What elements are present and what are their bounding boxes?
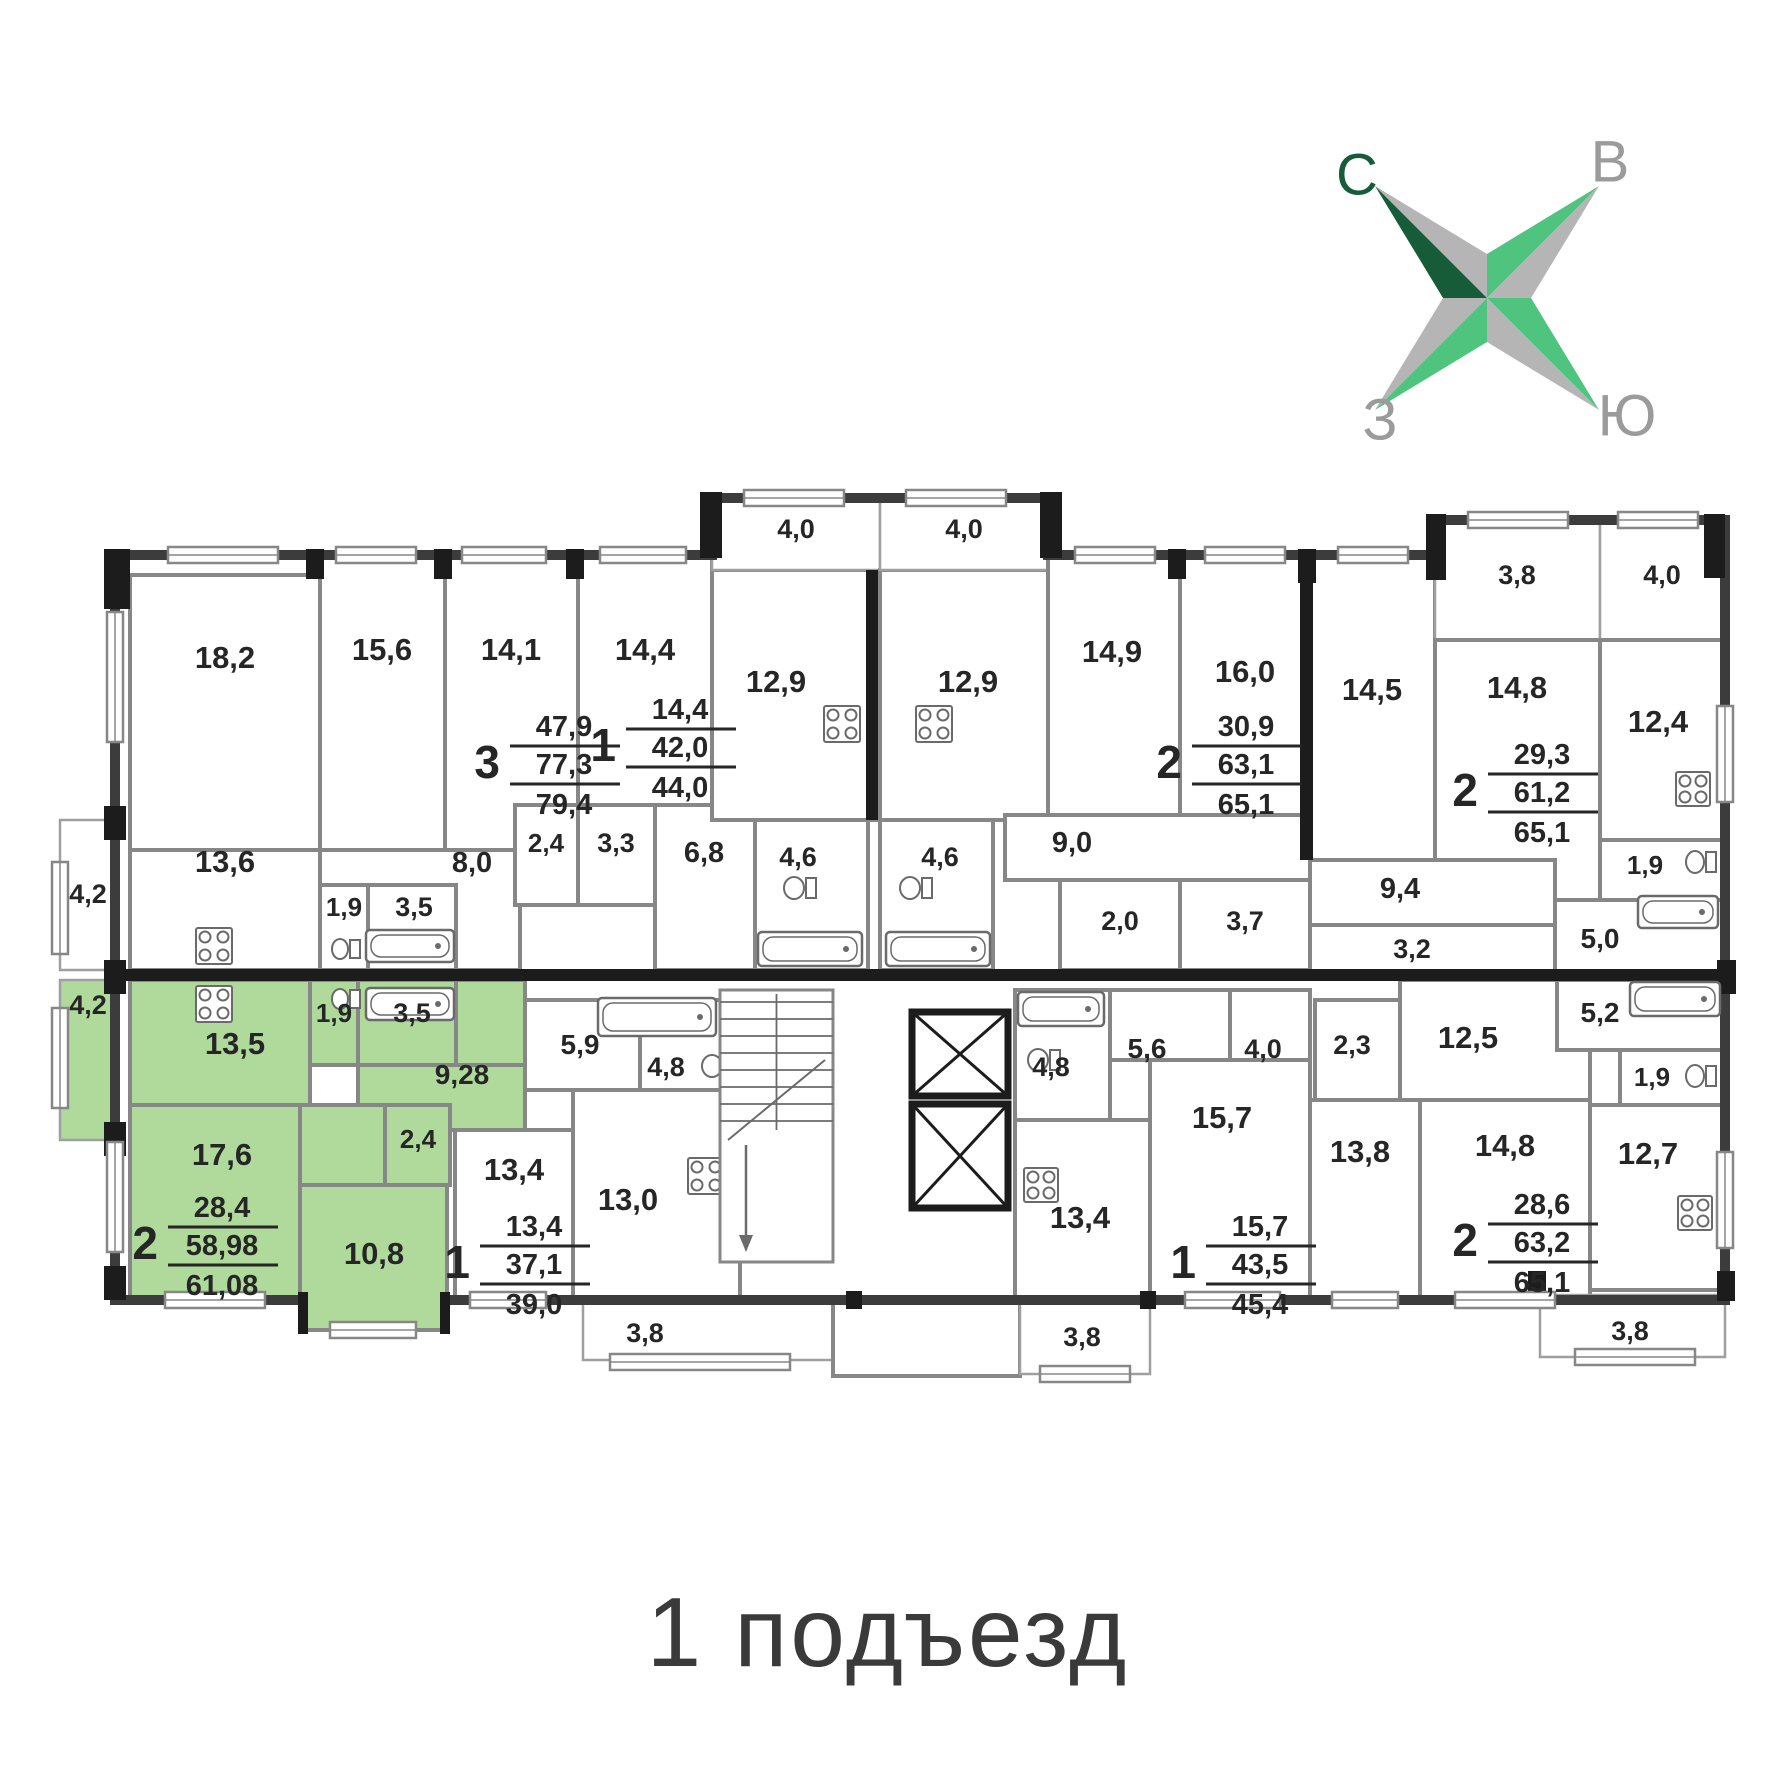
apartment-area: 63,1 (1218, 749, 1274, 781)
compass-rose: С В З Ю (1280, 100, 1740, 480)
wall-pier (866, 570, 878, 820)
room-area-label: 4,2 (69, 879, 107, 909)
room-area-label: 4,0 (1643, 560, 1681, 590)
room-area-label: 3,3 (597, 828, 635, 858)
room-area-label: 4,8 (1032, 1052, 1070, 1082)
compass-label-east: В (1591, 130, 1630, 195)
room-area-label: 15,6 (352, 632, 412, 667)
room-area-label: 13,4 (484, 1152, 545, 1187)
room-area-label: 13,5 (205, 1026, 265, 1061)
apartment-living-area: 28,4 (194, 1192, 250, 1224)
room-area-label: 2,3 (1333, 1030, 1371, 1060)
tub-icon (366, 930, 454, 962)
room-area-label: 12,9 (746, 664, 806, 699)
wall-pier (566, 549, 584, 579)
stove-icon (1678, 1196, 1712, 1230)
room-area-label: 5,0 (1581, 923, 1620, 954)
shaft-icon (912, 1104, 1008, 1208)
stove-icon (1676, 772, 1710, 806)
room-room-18-2 (130, 575, 320, 850)
apartment-total-area: 65,1 (1514, 1267, 1570, 1299)
toilet-icon (1686, 1065, 1716, 1087)
apartment-living-area: 29,3 (1514, 739, 1570, 771)
toilet-icon (332, 939, 360, 959)
room-area-label: 14,8 (1487, 670, 1547, 705)
apartment-rooms-count: 2 (1452, 764, 1478, 816)
room-area-label: 14,4 (615, 632, 676, 667)
toilet-icon (784, 877, 816, 899)
apartment-area: 43,5 (1232, 1249, 1288, 1281)
apartment-rooms-count: 1 (1170, 1236, 1196, 1288)
apartment-total-area: 39,0 (506, 1289, 562, 1321)
toilet-icon (900, 877, 932, 899)
apartment-total-area: 65,1 (1514, 817, 1570, 849)
room-room-14-5 (1310, 555, 1435, 860)
room-area-label: 3,8 (1611, 1316, 1649, 1346)
tub-icon (598, 998, 716, 1036)
apartment-area: 42,0 (652, 732, 708, 764)
room-area-label: 1,9 (1627, 850, 1663, 880)
apartment-living-area: 14,4 (652, 694, 708, 726)
room-area-label: 1,9 (316, 998, 352, 1028)
room-area-label: 14,1 (481, 632, 541, 667)
room-hall-9-28-lower (300, 1105, 385, 1185)
stove-icon (1024, 1168, 1058, 1202)
balcony-balcony-3-8-bottom1 (583, 1300, 850, 1360)
room-area-label: 12,7 (1618, 1136, 1678, 1171)
central-divider-wall (115, 969, 1725, 981)
room-area-label: 4,2 (69, 990, 107, 1020)
apartment-area: 58,98 (186, 1230, 259, 1262)
room-area-label: 14,8 (1475, 1128, 1535, 1163)
stove-icon (824, 706, 860, 742)
room-area-label: 13,6 (195, 844, 255, 879)
entrance-caption: 1 подъезд (0, 1576, 1776, 1689)
room-area-label: 8,0 (452, 847, 492, 879)
wall-pier (700, 492, 722, 558)
room-area-label: 13,0 (598, 1182, 658, 1217)
wall-pier (104, 806, 126, 840)
apartment-total-area: 44,0 (652, 772, 708, 804)
apartment-rooms-count: 2 (1156, 736, 1182, 788)
room-area-label: 4,6 (921, 842, 959, 872)
room-area-label: 2,0 (1101, 906, 1139, 936)
wall-pier (104, 549, 130, 609)
apartment-rooms-count: 3 (474, 736, 500, 788)
room-area-label: 14,9 (1082, 634, 1142, 669)
wall-pier (1168, 549, 1186, 579)
wall-pier (306, 549, 324, 579)
wall-pier (104, 960, 126, 994)
room-area-label: 12,5 (1438, 1020, 1498, 1055)
room-area-label: 14,5 (1342, 672, 1402, 707)
room-storage-3-2 (1310, 925, 1555, 975)
room-area-label: 1,9 (1634, 1062, 1670, 1092)
room-area-label: 15,7 (1192, 1100, 1252, 1135)
room-area-label: 13,8 (1330, 1134, 1390, 1169)
room-area-label: 4,8 (647, 1052, 685, 1082)
stove-icon (196, 986, 232, 1022)
room-area-label: 4,0 (777, 514, 815, 544)
apartment-total-area: 65,1 (1218, 789, 1274, 821)
room-area-label: 18,2 (195, 640, 255, 675)
wall-pier (434, 549, 452, 579)
room-area-label: 6,8 (684, 837, 724, 869)
tub-icon (1018, 992, 1104, 1026)
apartment-rooms-count: 1 (590, 719, 616, 771)
apartment-area: 37,1 (506, 1249, 562, 1281)
room-kitchen-12-4 (1600, 640, 1725, 840)
wall-pier (440, 1292, 450, 1334)
wall-pier (846, 1291, 862, 1309)
room-area-label: 5,6 (1128, 1033, 1167, 1064)
room-area-label: 2,4 (528, 828, 565, 858)
apartment-living-area: 13,4 (506, 1211, 562, 1243)
room-area-label: 3,8 (626, 1318, 664, 1348)
apartment-living-area: 47,9 (536, 711, 592, 743)
shaft-icon (912, 1012, 1008, 1096)
wall-pier (1300, 560, 1313, 860)
room-area-label: 4,0 (1244, 1034, 1282, 1064)
room-corridor-9-4 (1310, 860, 1555, 925)
tub-icon (1638, 896, 1718, 928)
room-area-label: 9,28 (435, 1059, 490, 1090)
apartment-area: 77,3 (536, 749, 592, 781)
room-corridor-6-8 (655, 805, 755, 970)
wall-pier (1140, 1291, 1156, 1309)
apartment-living-area: 15,7 (1232, 1211, 1288, 1243)
room-area-label: 9,0 (1052, 827, 1092, 859)
apartment-living-area: 30,9 (1218, 711, 1274, 743)
room-room-13-8 (1310, 1100, 1420, 1300)
apartment-total-area: 45,4 (1232, 1289, 1288, 1321)
apartment-rooms-count: 2 (132, 1217, 158, 1269)
wall-pier (1040, 492, 1062, 558)
room-room-15-6 (320, 555, 445, 850)
tub-icon (1630, 982, 1720, 1016)
room-area-label: 4,6 (779, 842, 817, 872)
stairs-icon (720, 990, 833, 1262)
room-area-label: 5,9 (561, 1029, 600, 1060)
toilet-icon (1686, 851, 1716, 873)
compass-label-north: С (1336, 143, 1378, 208)
room-area-label: 16,0 (1215, 654, 1275, 689)
wall-pier (1426, 514, 1446, 580)
apartment-area: 61,2 (1514, 777, 1570, 809)
wall-pier (298, 1292, 308, 1334)
wall-pier (104, 1266, 126, 1300)
room-area-label: 17,6 (192, 1137, 252, 1172)
room-hall-9-28-upper (456, 980, 525, 1065)
room-area-label: 12,4 (1628, 704, 1689, 739)
room-area-label: 13,4 (1050, 1200, 1111, 1235)
tub-icon (758, 932, 862, 966)
apartment-rooms-count: 1 (444, 1236, 470, 1288)
room-area-label: 3,5 (393, 998, 431, 1028)
room-area-label: 1,9 (326, 892, 362, 922)
wall-pier (1704, 514, 1725, 578)
room-area-label: 2,4 (400, 1124, 437, 1154)
room-area-label: 3,8 (1063, 1322, 1101, 1352)
room-area-label: 10,8 (344, 1236, 404, 1271)
room-entrance-lobby (833, 1300, 1020, 1376)
room-area-label: 9,4 (1380, 873, 1420, 905)
apartment-rooms-count: 2 (1452, 1214, 1478, 1266)
stove-icon (916, 706, 952, 742)
room-area-label: 4,0 (945, 514, 983, 544)
room-area-label: 3,5 (395, 892, 433, 922)
compass-label-west: З (1362, 388, 1397, 453)
apartment-area: 63,2 (1514, 1227, 1570, 1259)
tub-icon (886, 932, 990, 966)
apartment-living-area: 28,6 (1514, 1189, 1570, 1221)
room-area-label: 3,7 (1226, 906, 1264, 936)
compass-label-south: Ю (1598, 384, 1657, 449)
wall-pier (1717, 1271, 1735, 1301)
room-area-label: 5,2 (1581, 997, 1620, 1028)
room-corridor-9-0 (1005, 815, 1310, 880)
stove-icon (196, 928, 232, 964)
room-area-label: 12,9 (938, 664, 998, 699)
room-area-label: 3,8 (1498, 560, 1536, 590)
room-area-label: 3,2 (1393, 934, 1431, 964)
apartment-total-area: 61,08 (186, 1270, 259, 1302)
apartment-total-area: 79,4 (536, 789, 592, 821)
